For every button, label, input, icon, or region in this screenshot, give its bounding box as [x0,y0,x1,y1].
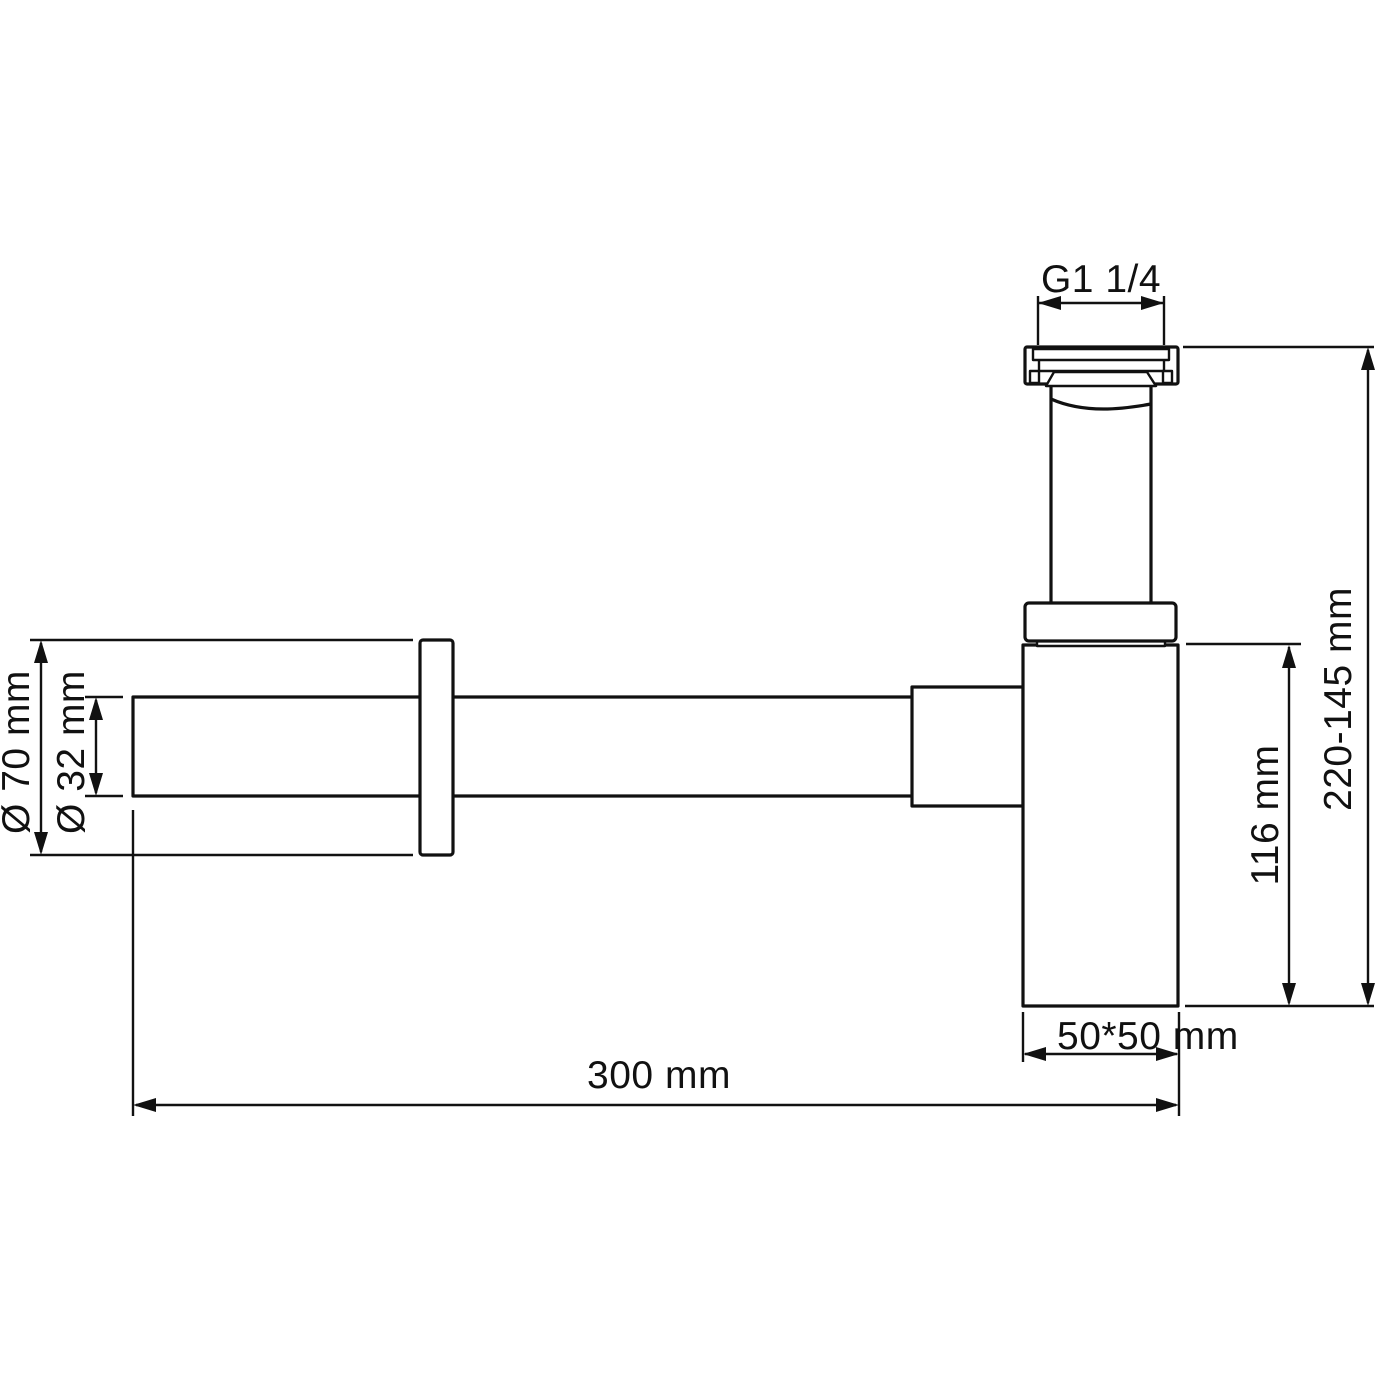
dim-label-total-length: 300 mm [587,1054,731,1097]
dim-pipe-diameter: Ø 32 mm [50,670,123,834]
collar-nut [1025,603,1176,641]
sink-thread-fitting [1025,347,1178,386]
arrowhead-left [133,1098,156,1112]
dim-label-pipe-diameter: Ø 32 mm [50,670,93,834]
technical-drawing-canvas: G1 1/4 220-145 mm 116 mm 50*50 mm [0,0,1376,1376]
dim-height-range: 220-145 mm [1183,347,1375,1006]
inlet-connector [912,687,1023,806]
fitting-washer [1046,372,1156,386]
arrowhead-down [1282,983,1296,1006]
bottle-trap-dimension-drawing: G1 1/4 220-145 mm 116 mm 50*50 mm [0,0,1376,1376]
wall-flange [420,640,453,855]
arrowhead-left [1023,1047,1046,1061]
dim-label-body-height: 116 mm [1244,745,1287,886]
dim-body-height: 116 mm [1186,644,1301,1006]
dim-label-flange-diameter: Ø 70 mm [0,670,38,834]
fitting-top-plate [1033,349,1169,360]
fitting-tab-left [1030,371,1039,383]
tailpiece-cut-curve [1051,399,1151,409]
arrowhead-up [34,640,48,663]
horizontal-outlet-pipe [133,697,913,796]
arrowhead-up [1361,347,1375,370]
dim-thread: G1 1/4 [1038,258,1164,345]
dim-body-footprint: 50*50 mm [1023,1012,1239,1116]
dim-label-height-range: 220-145 mm [1317,587,1360,811]
arrowhead-up [1282,645,1296,668]
fitting-tab-right [1163,371,1172,383]
dim-label-thread: G1 1/4 [1041,258,1161,301]
arrowhead-down [34,832,48,855]
arrowhead-down [1361,983,1375,1006]
arrowhead-right [1156,1098,1179,1112]
dim-label-body-footprint: 50*50 mm [1057,1015,1239,1058]
bottle-trap-outline [133,347,1178,1006]
trap-cup-body [1023,645,1178,1006]
